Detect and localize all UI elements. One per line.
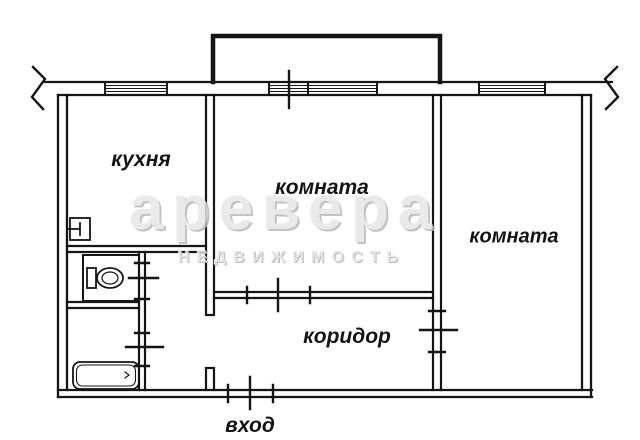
kitchen-window [105,82,167,95]
right-break-arrow-icon [605,67,618,109]
kitchen-sink-icon [67,218,90,240]
floor-plan-drawing [0,0,640,440]
right-room-label: комната [469,226,558,249]
kitchen-bottom-wall [67,246,206,252]
entrance-wall-stub [206,368,214,390]
bathtub-icon [73,362,139,389]
corridor-label: коридор [303,325,391,349]
right-room-door [420,311,457,352]
kitchen-label: кухня [111,148,171,172]
main-room-door [247,279,310,311]
door-symbols [126,263,457,409]
wc-door [129,263,158,299]
balcony-outline [213,36,440,82]
fixtures [67,218,139,389]
kitchen-room-wall [206,95,214,315]
rooms-divider-wall [433,95,441,390]
entrance-label: вход [225,414,275,438]
floor-plan: аревера НЕДВИЖИМОСТЬ кухня комната комна… [0,0,640,440]
left-break-arrow-icon [32,67,45,109]
entrance-door [228,377,273,409]
wc-bath-divider-wall [67,302,139,308]
balcony-window [269,71,377,108]
right-room-window [479,82,545,95]
main-room-label: комната [275,176,369,200]
